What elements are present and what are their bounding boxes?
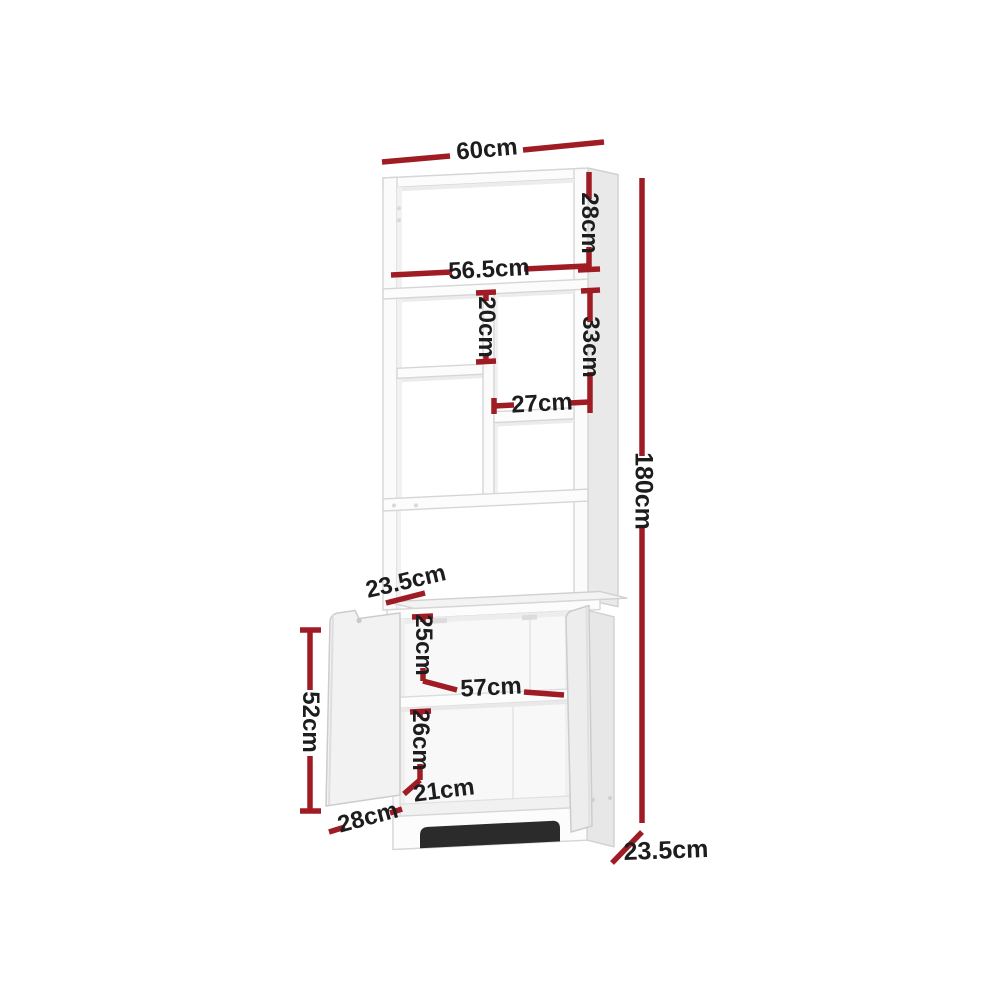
dim-line-right-cubby-right bbox=[570, 402, 589, 403]
hinge-plate-right bbox=[522, 615, 537, 621]
dim-cap-right-opening-top bbox=[581, 290, 600, 291]
product-dimension-diagram: 60cm 28cm 56.5cm 20cm 33cm 27cm 180cm 23… bbox=[0, 0, 1000, 1000]
dim-label-inner-width: 56.5cm bbox=[448, 256, 531, 284]
dim-line-inner-width-left bbox=[391, 272, 452, 275]
dim-label-cabinet-bottom-inner-height: 26cm bbox=[408, 709, 432, 770]
dim-label-left-cubby-height: 20cm bbox=[474, 296, 498, 357]
dim-cap-left-cubby-top bbox=[476, 292, 496, 293]
left-door-open bbox=[326, 611, 400, 807]
dim-cap-top-opening bbox=[578, 269, 600, 270]
dim-label-total-height: 180cm bbox=[631, 452, 656, 530]
left-door-screw bbox=[356, 618, 361, 623]
upper-left-stile bbox=[383, 177, 397, 610]
dim-line-cab-width-right bbox=[524, 692, 564, 695]
dim-line-top-width-left bbox=[382, 156, 450, 162]
dim-label-top-opening-height: 28cm bbox=[577, 192, 601, 253]
dim-line-inner-width-right bbox=[524, 266, 587, 269]
dim-label-door-height: 52cm bbox=[298, 691, 322, 752]
dim-cap-left-cubby-bottom bbox=[476, 361, 496, 362]
dim-line-top-width-right bbox=[523, 142, 604, 150]
dim-label-right-cubby-width: 27cm bbox=[511, 390, 574, 417]
dim-label-top-width: 60cm bbox=[455, 135, 518, 164]
dim-label-cabinet-top-inner-height: 25cm bbox=[411, 614, 435, 675]
dim-label-cabinet-inner-width: 57cm bbox=[460, 674, 523, 701]
dim-label-right-opening-height: 33cm bbox=[578, 316, 602, 377]
dim-label-cabinet-depth: 23.5cm bbox=[623, 837, 709, 865]
